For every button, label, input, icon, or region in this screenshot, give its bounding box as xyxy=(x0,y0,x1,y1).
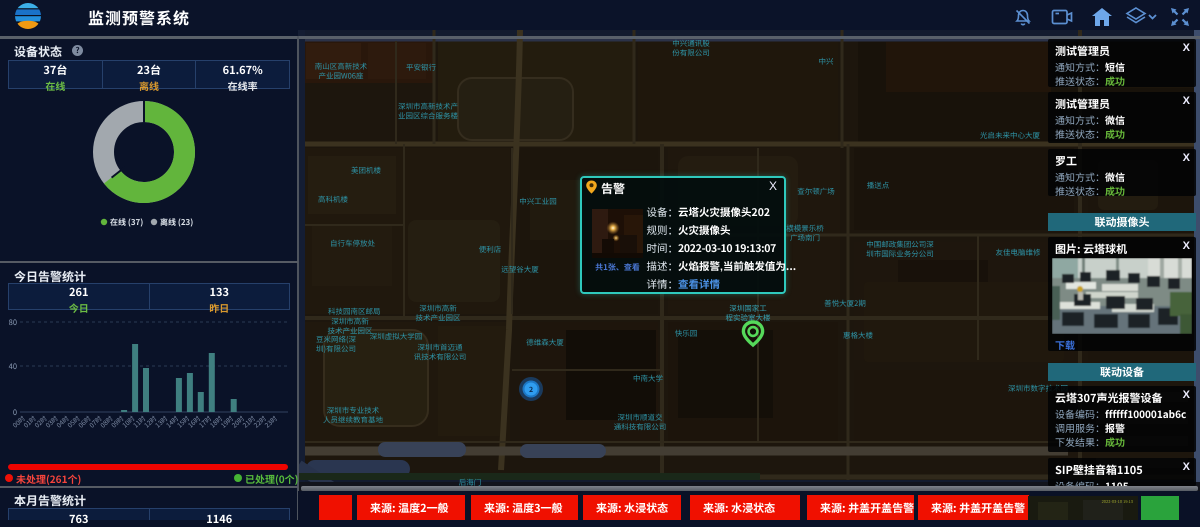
svg-text:查尔顿广场: 查尔顿广场 xyxy=(797,186,835,197)
svg-text:平安银行: 平安银行 xyxy=(406,62,436,73)
svg-text:在线 (37): 在线 (37) xyxy=(110,217,143,228)
svg-text:人员继续教育基地: 人员继续教育基地 xyxy=(323,415,383,426)
svg-text:中南大学: 中南大学 xyxy=(633,373,663,384)
svg-text:广场南门: 广场南门 xyxy=(790,233,820,244)
svg-text:惠格大楼: 惠格大楼 xyxy=(843,330,873,341)
svg-text:40: 40 xyxy=(9,361,17,372)
svg-text:美团机楼: 美团机楼 xyxy=(351,165,381,176)
svg-text:23时: 23时 xyxy=(262,413,279,430)
svg-text:圳市国际业务分公司: 圳市国际业务分公司 xyxy=(866,249,934,260)
svg-text:播送点: 播送点 xyxy=(867,180,890,191)
svg-text:光启未来中心大厦: 光启未来中心大厦 xyxy=(980,130,1040,141)
svg-text:通科技有限公司: 通科技有限公司 xyxy=(614,422,667,433)
svg-text:中兴: 中兴 xyxy=(819,56,834,67)
svg-text:德维森大厦: 德维森大厦 xyxy=(526,337,564,348)
svg-text:2022-03-10 19:13: 2022-03-10 19:13 xyxy=(1102,499,1133,505)
svg-text:深圳虚拟大学园: 深圳虚拟大学园 xyxy=(370,331,423,342)
svg-text:快乐园: 快乐园 xyxy=(675,328,698,339)
svg-text:高科机楼: 高科机楼 xyxy=(318,194,348,205)
svg-text:便利店: 便利店 xyxy=(479,244,502,255)
svg-text:远望谷大厦: 远望谷大厦 xyxy=(501,264,539,275)
svg-text:讯技术有限公司: 讯技术有限公司 xyxy=(414,352,467,363)
svg-text:业园区综合服务楼: 业园区综合服务楼 xyxy=(398,111,458,122)
svg-text:友佳电脑维修: 友佳电脑维修 xyxy=(996,247,1041,258)
svg-text:80: 80 xyxy=(9,317,17,328)
svg-text:善悦大厦2期: 善悦大厦2期 xyxy=(824,298,866,309)
svg-text:圳)有限公司: 圳)有限公司 xyxy=(316,344,356,355)
svg-text:中兴工业园: 中兴工业园 xyxy=(519,196,557,207)
svg-text:自行车停放处: 自行车停放处 xyxy=(330,238,375,249)
svg-text:份有限公司: 份有限公司 xyxy=(672,48,710,59)
svg-text:产业园W06座: 产业园W06座 xyxy=(319,71,364,82)
svg-text:技术产业园区: 技术产业园区 xyxy=(416,313,461,324)
svg-text:2: 2 xyxy=(529,385,533,395)
svg-text:离线 (23): 离线 (23) xyxy=(160,217,193,228)
